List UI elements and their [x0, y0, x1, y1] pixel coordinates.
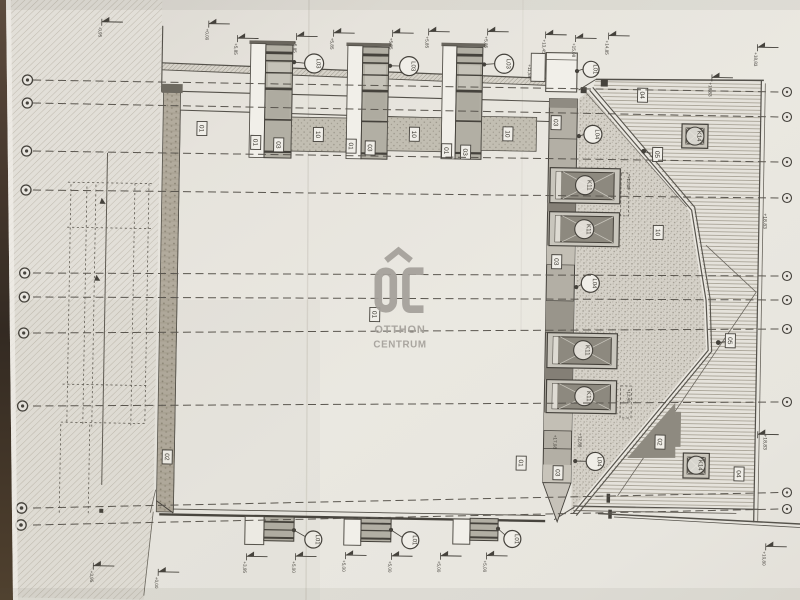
svg-text:03: 03: [552, 119, 559, 127]
svg-text:02: 02: [656, 438, 663, 446]
svg-text:10: 10: [410, 131, 417, 139]
svg-text:+18,83: +18,83: [761, 434, 767, 450]
svg-text:-0,95: -0,95: [98, 27, 103, 38]
svg-text:L04: L04: [593, 129, 599, 140]
svg-text:+17,08: +17,08: [552, 435, 557, 450]
svg-text:L04: L04: [591, 278, 597, 289]
svg-text:+5,85: +5,85: [329, 38, 334, 50]
svg-text:+5,00: +5,00: [482, 560, 487, 572]
svg-text:+0,00: +0,00: [204, 29, 209, 41]
svg-text:L01: L01: [513, 534, 519, 545]
svg-text:L01: L01: [411, 535, 417, 546]
svg-text:05: 05: [726, 337, 733, 345]
svg-text:03: 03: [366, 144, 373, 152]
svg-text:+5,85: +5,85: [292, 41, 297, 53]
svg-text:01: 01: [347, 142, 354, 150]
svg-text:03: 03: [552, 258, 559, 266]
svg-text:05: 05: [653, 151, 660, 159]
svg-text:K14: K14: [697, 460, 703, 471]
svg-text:+10,80: +10,80: [761, 551, 766, 566]
svg-text:+18,83: +18,83: [753, 52, 758, 67]
svg-text:03: 03: [274, 141, 281, 149]
svg-text:04: 04: [735, 470, 742, 478]
svg-text:+18,83: +18,83: [708, 82, 713, 97]
svg-text:01: 01: [442, 147, 449, 155]
svg-text:OTTHON: OTTHON: [374, 324, 425, 336]
svg-text:01: 01: [197, 125, 204, 133]
svg-text:+5,85: +5,85: [388, 38, 393, 50]
svg-text:K11: K11: [585, 224, 592, 235]
svg-text:+12,48: +12,48: [626, 176, 631, 190]
svg-text:+5,00: +5,00: [387, 561, 392, 573]
svg-text:L03: L03: [505, 59, 511, 70]
svg-text:10: 10: [654, 229, 661, 237]
svg-text:+11,58: +11,58: [527, 64, 532, 78]
svg-text:01: 01: [251, 139, 258, 147]
svg-text:+12,48: +12,48: [626, 389, 631, 403]
svg-text:+5,85: +5,85: [233, 43, 238, 55]
svg-text:+5,85: +5,85: [424, 36, 429, 48]
svg-text:03: 03: [554, 469, 561, 477]
svg-text:L01: L01: [591, 64, 597, 75]
svg-text:+5,00: +5,00: [341, 560, 346, 572]
svg-text:+15,08: +15,08: [571, 43, 576, 58]
svg-text:01: 01: [517, 459, 524, 467]
svg-text:L03: L03: [409, 61, 415, 72]
svg-text:+14,85: +14,85: [604, 41, 609, 56]
svg-text:03: 03: [461, 148, 468, 156]
svg-text:K11: K11: [585, 180, 592, 191]
svg-text:04: 04: [638, 92, 645, 100]
svg-text:K11: K11: [584, 345, 591, 356]
svg-text:L03: L03: [315, 58, 321, 69]
svg-text:K14: K14: [695, 131, 701, 142]
svg-text:+13,45: +13,45: [541, 39, 546, 54]
svg-text:+18,83: +18,83: [761, 213, 767, 229]
svg-text:10: 10: [314, 131, 321, 139]
svg-text:+5,85: +5,85: [483, 36, 488, 48]
svg-text:+12,88: +12,88: [577, 433, 582, 448]
svg-text:+5,00: +5,00: [436, 561, 441, 573]
svg-text:L04: L04: [596, 456, 602, 467]
svg-text:K11: K11: [585, 391, 592, 402]
svg-text:01: 01: [370, 311, 377, 319]
svg-text:CENTRUM: CENTRUM: [373, 340, 426, 351]
svg-text:10: 10: [503, 130, 510, 138]
